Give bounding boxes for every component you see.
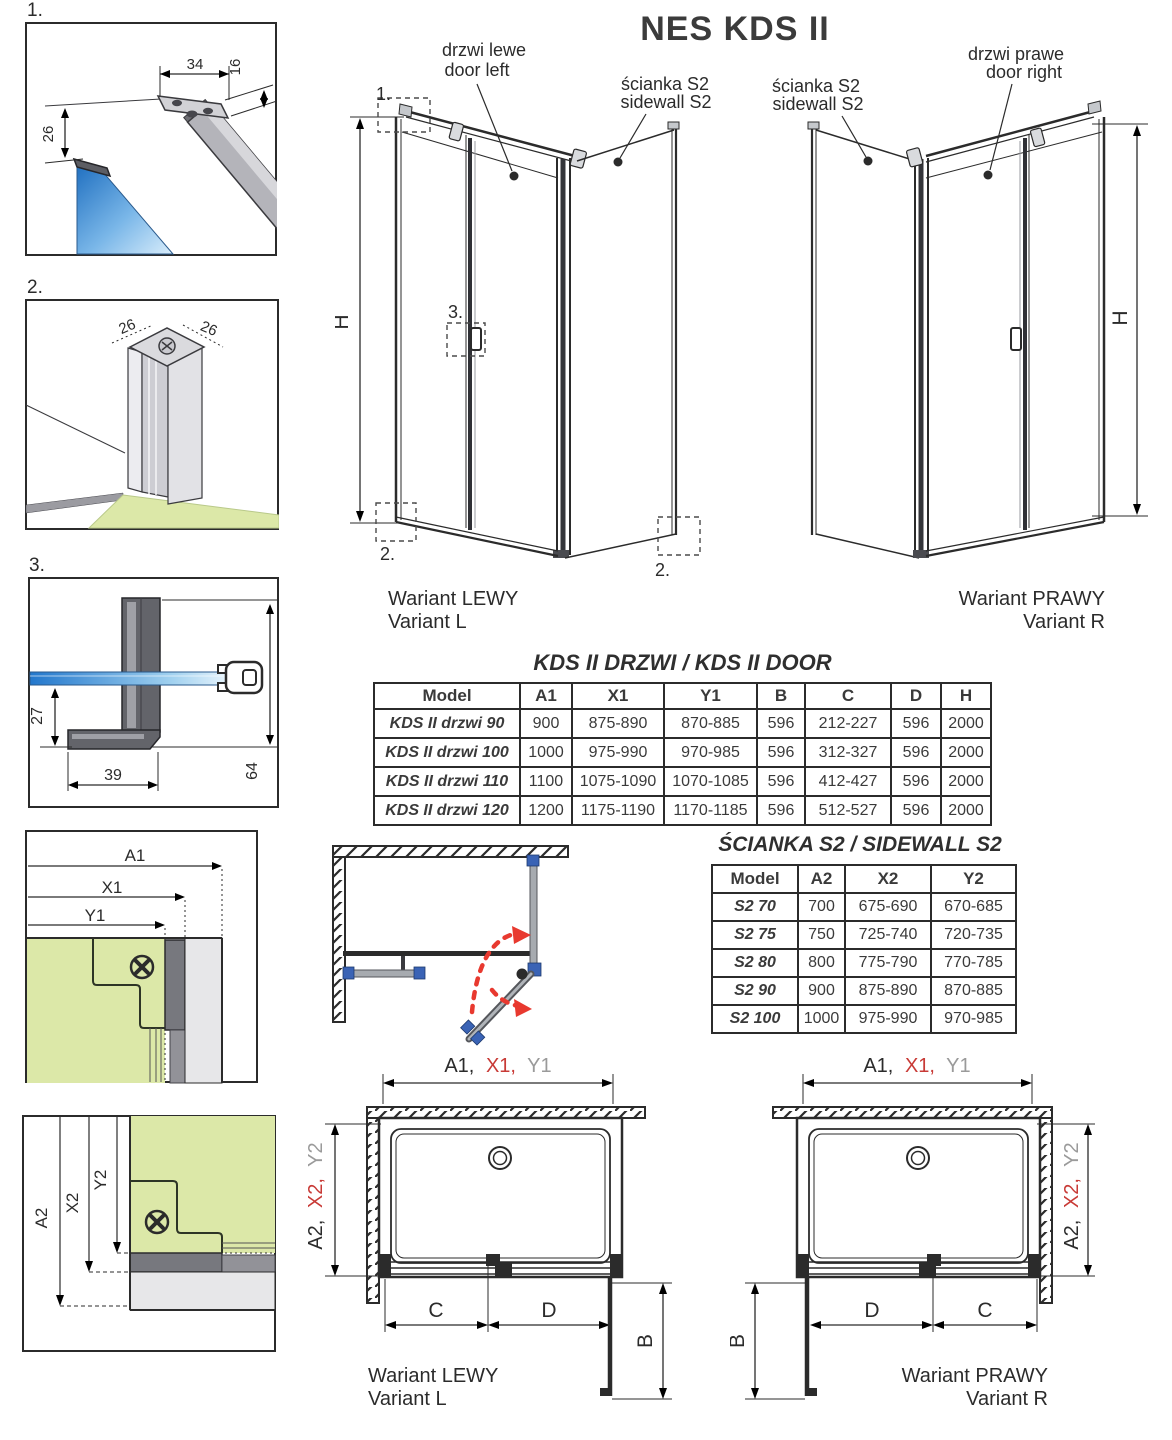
col-model: Model xyxy=(712,865,798,893)
caption-en: Variant R xyxy=(966,1388,1048,1410)
wall-left xyxy=(367,1118,379,1303)
page: NES KDS II 1. 2. 3. xyxy=(0,0,1172,1440)
support-bar xyxy=(347,970,421,977)
dim-a2: A2, xyxy=(305,1220,327,1250)
dim-y1: Y1 xyxy=(527,1055,551,1077)
sidewall-panel xyxy=(530,858,537,972)
dim-b-label: B xyxy=(634,1334,657,1348)
dim-a1: A1, xyxy=(444,1055,474,1077)
dim-x2: X2, xyxy=(1061,1178,1083,1208)
cell: 2000 xyxy=(941,767,991,796)
cell: 596 xyxy=(757,767,805,796)
col-d: D xyxy=(891,683,941,709)
pointer-dot-sidewall xyxy=(614,158,623,167)
col-y2: Y2 xyxy=(931,865,1016,893)
callout-2b: 2. xyxy=(655,560,670,580)
sidewall-label-en: sidewall S2 xyxy=(620,92,711,112)
cell: 875-890 xyxy=(845,977,931,1005)
cell: 1075-1090 xyxy=(572,767,664,796)
cell: 596 xyxy=(757,709,805,738)
dim-x1-label: X1 xyxy=(102,878,123,897)
cell: S2 90 xyxy=(712,977,798,1005)
wall-right xyxy=(1040,1118,1052,1303)
glass-area xyxy=(27,938,165,1083)
dim-c-label: C xyxy=(428,1299,443,1322)
cell: 596 xyxy=(891,709,941,738)
table-row: KDS II drzwi 90 900 875-890 870-885 596 … xyxy=(374,709,991,738)
door-right-label-pl: drzwi prawe xyxy=(968,44,1064,64)
door-table-title: KDS II DRZWI / KDS II DOOR xyxy=(373,650,992,676)
wall-area xyxy=(130,1272,275,1310)
table-row: S2 100 1000 975-990 970-985 xyxy=(712,1005,1016,1033)
top-dim-label: A1, X1, Y1 xyxy=(444,1055,551,1077)
wall-top xyxy=(773,1107,1052,1118)
pointer-dot-door xyxy=(510,172,519,181)
cell: KDS II drzwi 120 xyxy=(374,796,520,825)
wall-area xyxy=(185,938,222,1083)
cell: 2000 xyxy=(941,796,991,825)
cell: 212-227 xyxy=(805,709,891,738)
table-row: KDS II drzwi 100 1000 975-990 970-985 59… xyxy=(374,738,991,767)
door-handle xyxy=(471,328,481,350)
callout-3: 3. xyxy=(448,302,463,322)
dim-16: 16 xyxy=(227,59,244,76)
dim-x1: X1, xyxy=(905,1055,935,1077)
dim-a2-label: A2 xyxy=(32,1208,51,1229)
detail-2-number: 2. xyxy=(27,277,43,299)
cell: 870-885 xyxy=(664,709,757,738)
table-row: S2 75 750 725-740 720-735 xyxy=(712,921,1016,949)
cell: 1000 xyxy=(520,738,572,767)
door-left-label-pl: drzwi lewe xyxy=(442,40,526,60)
dim-d-label: D xyxy=(864,1299,879,1322)
pointer-dot-door xyxy=(984,171,993,180)
table-row: S2 80 800 775-790 770-785 xyxy=(712,949,1016,977)
sidewall-table: Model A2 X2 Y2 S2 70 700 675-690 670-685… xyxy=(711,864,1017,1034)
cell: 596 xyxy=(891,767,941,796)
col-model: Model xyxy=(374,683,520,709)
dim-x2: X2, xyxy=(305,1178,327,1208)
profile-strip xyxy=(165,940,185,1030)
corner-detail-horizontal: A1 X1 Y1 xyxy=(25,830,259,1084)
cell: KDS II drzwi 100 xyxy=(374,738,520,767)
col-a2: A2 xyxy=(798,865,845,893)
detail-1-number: 1. xyxy=(27,0,43,22)
cell: S2 75 xyxy=(712,921,798,949)
cell: 670-685 xyxy=(931,893,1016,921)
side-dim-label: A2, X2, Y2 xyxy=(1061,1142,1083,1249)
door-table-header-row: Model A1 X1 Y1 B C D H xyxy=(374,683,991,709)
caption-en: Variant L xyxy=(388,611,467,633)
cell: 870-885 xyxy=(931,977,1016,1005)
cell: 775-790 xyxy=(845,949,931,977)
cell: 970-985 xyxy=(664,738,757,767)
height-label: H xyxy=(335,314,353,329)
door-right-label-en: door right xyxy=(986,62,1062,82)
dim-c-label: C xyxy=(977,1299,992,1322)
dim-a1: A1, xyxy=(863,1055,893,1077)
cell: KDS II drzwi 90 xyxy=(374,709,520,738)
sidewall-label-pl: ścianka S2 xyxy=(772,76,860,96)
corner-profile xyxy=(128,328,204,504)
cell: S2 80 xyxy=(712,949,798,977)
cell: 2000 xyxy=(941,738,991,767)
dim-39: 39 xyxy=(104,767,122,784)
table-row: KDS II drzwi 110 1100 1075-1090 1070-108… xyxy=(374,767,991,796)
cell: 725-740 xyxy=(845,921,931,949)
dim-a1-label: A1 xyxy=(125,846,146,865)
caption-pl: Wariant PRAWY xyxy=(959,588,1105,610)
cell: 970-985 xyxy=(931,1005,1016,1033)
dim-d-label: D xyxy=(541,1299,556,1322)
cell: 900 xyxy=(520,709,572,738)
cell: 596 xyxy=(757,796,805,825)
corner-detail-vertical: A2 X2 Y2 xyxy=(22,1115,277,1353)
cell: 596 xyxy=(757,738,805,767)
col-y1: Y1 xyxy=(664,683,757,709)
dim-y1-label: Y1 xyxy=(85,906,106,925)
cell: 770-785 xyxy=(931,949,1016,977)
cell: 675-690 xyxy=(845,893,931,921)
pointer-dot-sidewall xyxy=(864,157,873,166)
col-x1: X1 xyxy=(572,683,664,709)
shower-tray xyxy=(797,1118,1040,1277)
pivot-dot xyxy=(517,969,528,980)
cell: 1170-1185 xyxy=(664,796,757,825)
table-row: S2 90 900 875-890 870-885 xyxy=(712,977,1016,1005)
cell: 875-890 xyxy=(572,709,664,738)
cell: 1000 xyxy=(798,1005,845,1033)
door-table: Model A1 X1 Y1 B C D H KDS II drzwi 90 9… xyxy=(373,682,992,826)
door-left-label-en: door left xyxy=(444,60,509,80)
cell: 596 xyxy=(891,738,941,767)
variant-left-drawing: drzwi lewe door left ścianka S2 sidewall… xyxy=(335,30,727,640)
caption-pl: Wariant LEWY xyxy=(388,588,518,610)
dim-y1: Y1 xyxy=(946,1055,970,1077)
cell: 975-990 xyxy=(845,1005,931,1033)
callout-1: 1. xyxy=(376,84,391,104)
cell: 900 xyxy=(798,977,845,1005)
detail-2-drawing: 26 26 xyxy=(25,299,279,530)
col-a1: A1 xyxy=(520,683,572,709)
cell: 750 xyxy=(798,921,845,949)
dim-26: 26 xyxy=(40,126,57,143)
cell: 412-427 xyxy=(805,767,891,796)
drain xyxy=(489,1147,511,1169)
col-h: H xyxy=(941,683,991,709)
fixed-panel xyxy=(343,951,536,956)
callout-2a: 2. xyxy=(380,544,395,564)
screw-icon xyxy=(159,338,175,354)
enclosure xyxy=(808,101,1104,558)
detail-3-drawing: 27 39 64 xyxy=(28,577,279,808)
cell: 1070-1085 xyxy=(664,767,757,796)
detail-1-drawing: 34 16 26 xyxy=(25,22,277,256)
height-label: H xyxy=(1109,310,1132,325)
cell: 975-990 xyxy=(572,738,664,767)
cell: 700 xyxy=(798,893,845,921)
profile-strip xyxy=(130,1253,222,1272)
caption-en: Variant L xyxy=(368,1388,447,1410)
dim-a2: A2, xyxy=(1061,1220,1083,1250)
cell: 720-735 xyxy=(931,921,1016,949)
cell: S2 100 xyxy=(712,1005,798,1033)
cell: 1200 xyxy=(520,796,572,825)
dim-y2: Y2 xyxy=(1061,1142,1083,1166)
caption-pl: Wariant LEWY xyxy=(368,1365,498,1387)
sidewall-table-header-row: Model A2 X2 Y2 xyxy=(712,865,1016,893)
col-c: C xyxy=(805,683,891,709)
col-b: B xyxy=(757,683,805,709)
cell: 2000 xyxy=(941,709,991,738)
door-handle xyxy=(1011,328,1021,350)
dim-x2-label: X2 xyxy=(63,1193,82,1214)
dim-y2: Y2 xyxy=(305,1142,327,1166)
caption-en: Variant R xyxy=(1023,611,1105,633)
dim-27: 27 xyxy=(29,707,46,725)
plan-right-drawing: A1, X1, Y1 A2, X2, Y2 xyxy=(730,1042,1160,1422)
dim-64: 64 xyxy=(244,762,261,780)
cell: 800 xyxy=(798,949,845,977)
table-row: KDS II drzwi 120 1200 1175-1190 1170-118… xyxy=(374,796,991,825)
variant-right-drawing: ścianka S2 sidewall S2 drzwi prawe door … xyxy=(758,30,1160,640)
table-row: S2 70 700 675-690 670-685 xyxy=(712,893,1016,921)
enclosure xyxy=(396,104,679,558)
top-dim-label: A1, X1, Y1 xyxy=(863,1055,970,1077)
wall-top xyxy=(367,1107,645,1118)
door-swing-schematic xyxy=(330,840,622,1055)
caption-pl: Wariant PRAWY xyxy=(902,1365,1048,1387)
cell: 312-327 xyxy=(805,738,891,767)
cell: 1175-1190 xyxy=(572,796,664,825)
shower-tray xyxy=(379,1118,622,1277)
dim-x1: X1, xyxy=(486,1055,516,1077)
side-dim-label: A2, X2, Y2 xyxy=(305,1142,327,1249)
dim-y2-label: Y2 xyxy=(91,1170,110,1191)
cell: 596 xyxy=(891,796,941,825)
wall-left xyxy=(333,857,345,1022)
dim-34: 34 xyxy=(187,56,204,73)
sidewall-table-title: ŚCIANKA S2 / SIDEWALL S2 xyxy=(640,833,1080,857)
detail-3-number: 3. xyxy=(29,555,45,577)
cell: 1100 xyxy=(520,767,572,796)
sidewall-label-en: sidewall S2 xyxy=(772,94,863,114)
drain xyxy=(907,1147,929,1169)
cell: S2 70 xyxy=(712,893,798,921)
cell: KDS II drzwi 110 xyxy=(374,767,520,796)
dim-b-label: B xyxy=(730,1334,749,1348)
col-x2: X2 xyxy=(845,865,931,893)
glass-panel xyxy=(30,672,230,685)
cell: 512-527 xyxy=(805,796,891,825)
sidewall-label-pl: ścianka S2 xyxy=(621,74,709,94)
callout-boxes xyxy=(376,98,700,555)
plan-left-drawing: A1, X1, Y1 A2, X2, Y2 xyxy=(300,1042,700,1422)
